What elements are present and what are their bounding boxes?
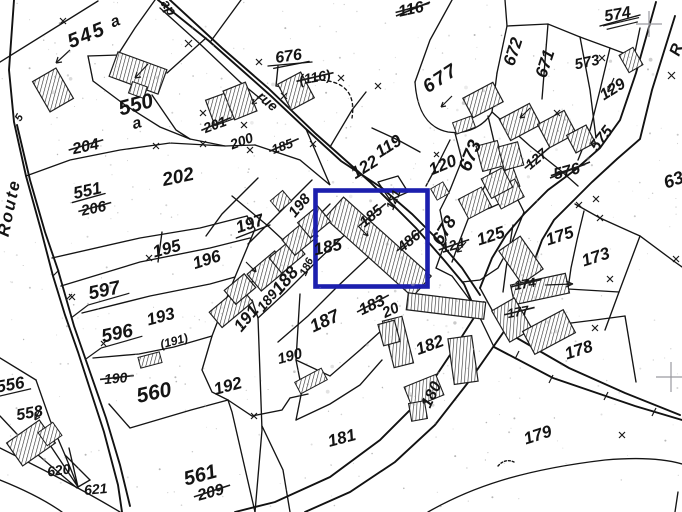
svg-text:621: 621	[83, 480, 108, 498]
svg-text:620: 620	[46, 460, 72, 479]
